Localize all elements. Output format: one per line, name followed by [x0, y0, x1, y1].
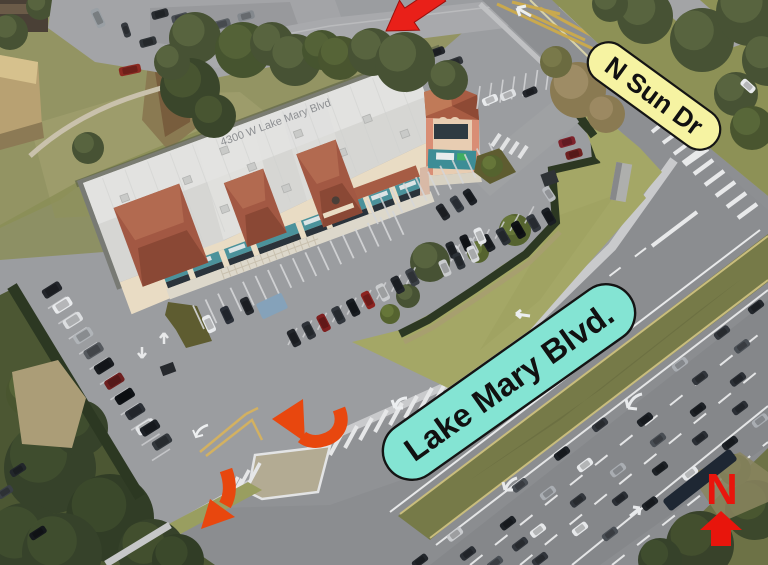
- svg-text:N: N: [706, 465, 738, 514]
